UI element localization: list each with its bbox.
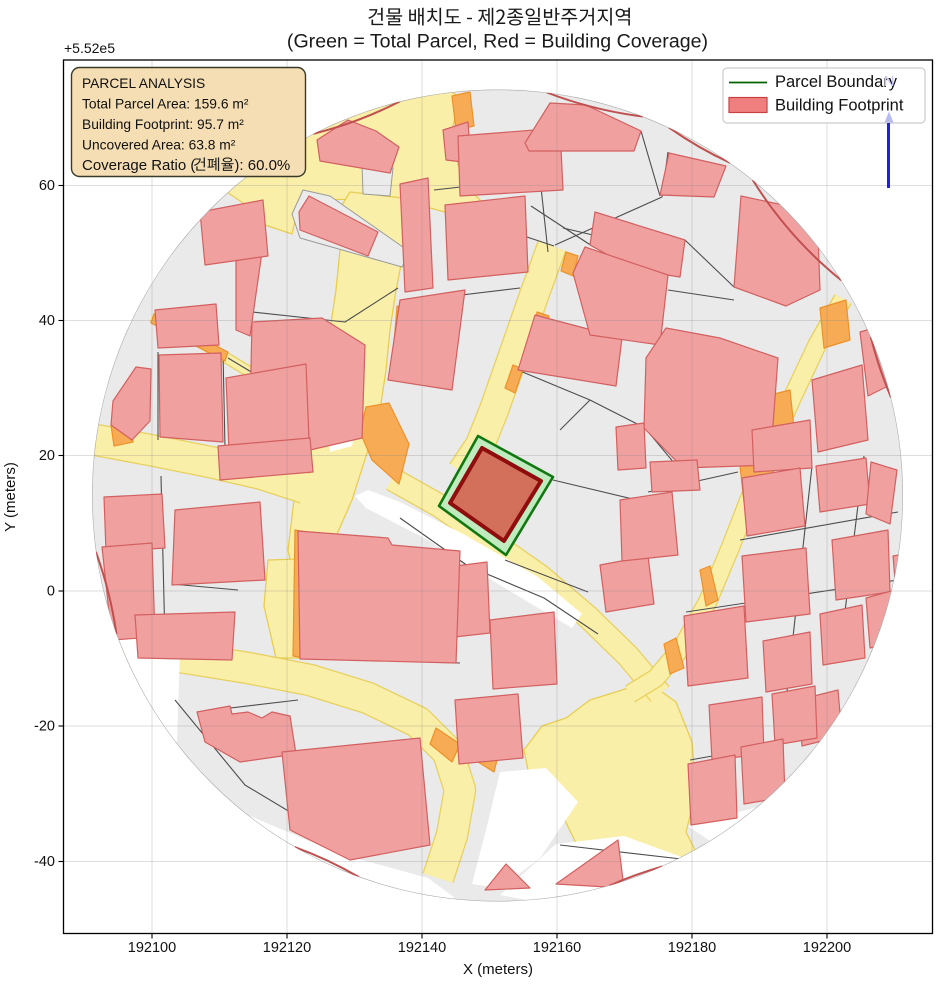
svg-text:Parcel Boundary: Parcel Boundary <box>775 73 898 91</box>
svg-text:192200: 192200 <box>803 940 851 956</box>
svg-text:40: 40 <box>39 313 55 329</box>
svg-text:-20: -20 <box>34 719 55 735</box>
svg-text:192180: 192180 <box>668 940 716 956</box>
svg-text:Total Parcel Area: 159.6 m²: Total Parcel Area: 159.6 m² <box>82 97 249 112</box>
svg-text:192160: 192160 <box>533 940 581 956</box>
svg-text:192100: 192100 <box>128 940 176 956</box>
svg-text:0: 0 <box>47 584 55 600</box>
svg-text:N: N <box>884 73 895 90</box>
svg-text:Coverage Ratio (: Coverage Ratio ( <box>82 157 195 174</box>
svg-text:(Green = Total Parcel, Red = B: (Green = Total Parcel, Red = Building Co… <box>287 31 708 53</box>
svg-text:-40: -40 <box>34 854 55 870</box>
svg-text:Uncovered Area: 63.8 m²: Uncovered Area: 63.8 m² <box>82 137 236 152</box>
svg-text:X (meters): X (meters) <box>463 961 533 978</box>
svg-text:Y (meters): Y (meters) <box>2 462 19 532</box>
svg-text:192140: 192140 <box>398 940 446 956</box>
svg-text:60: 60 <box>39 178 55 194</box>
svg-text:Building Footprint: 95.7 m²: Building Footprint: 95.7 m² <box>82 117 244 132</box>
svg-text:192120: 192120 <box>263 940 311 956</box>
svg-text:+5.52e5: +5.52e5 <box>64 40 115 56</box>
svg-text:Building Footprint: Building Footprint <box>775 97 904 115</box>
svg-text:PARCEL ANALYSIS: PARCEL ANALYSIS <box>82 76 205 91</box>
svg-text:): 60.0%: ): 60.0% <box>234 157 290 174</box>
svg-text:20: 20 <box>39 448 55 464</box>
